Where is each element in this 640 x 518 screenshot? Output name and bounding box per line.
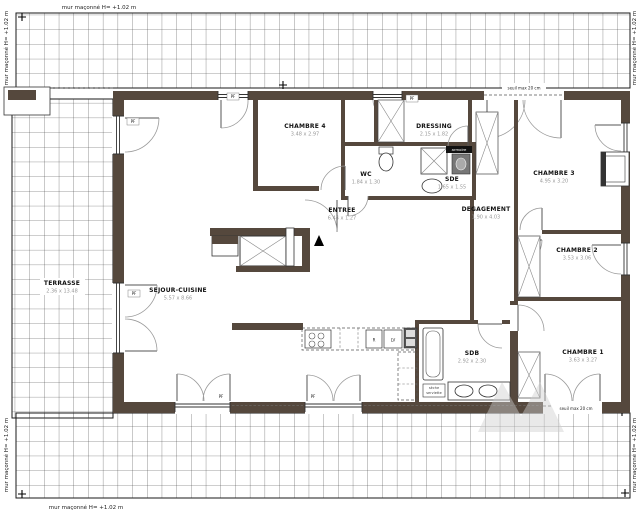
mur-label-left-top: mur maçonné H= +1.02 m — [3, 11, 10, 86]
dishwasher-label: LV — [391, 338, 396, 343]
pf-label: PF — [219, 394, 224, 399]
svg-text:2.92 x 2.30: 2.92 x 2.30 — [458, 359, 486, 365]
svg-text:3.48 x 2.97: 3.48 x 2.97 — [291, 132, 319, 138]
room-label-terrasse: TERRASSE 2.36 x 13.48 — [40, 278, 85, 295]
svg-text:3.53 x 3.06: 3.53 x 3.06 — [563, 256, 591, 262]
svg-text:CHAMBRE 3: CHAMBRE 3 — [533, 170, 574, 177]
floor-plan: mur maçonné H= +1.02 m mur maçonné H= +1… — [0, 0, 640, 513]
seche-serviette-label2: serviette — [426, 391, 442, 395]
pf-label: PF — [231, 94, 236, 99]
svg-text:1.90 x 4.03: 1.90 x 4.03 — [472, 215, 500, 221]
mur-label-right-bottom: mur maçonné H= +1.02 m — [631, 418, 638, 493]
svg-text:DEGAGEMENT: DEGAGEMENT — [462, 206, 512, 213]
svg-text:3.63 x 3.27: 3.63 x 3.27 — [569, 358, 597, 364]
svg-text:1.65 x 1.55: 1.65 x 1.55 — [438, 185, 466, 191]
mur-label-top: mur maçonné H= +1.02 m — [62, 4, 137, 11]
toilet-bowl — [379, 153, 393, 171]
svg-text:SEJOUR-CUISINE: SEJOUR-CUISINE — [149, 287, 207, 294]
svg-text:WC: WC — [360, 171, 372, 178]
svg-text:ENTREE: ENTREE — [328, 207, 355, 214]
mur-label-left-bottom: mur maçonné H= +1.02 m — [3, 418, 10, 493]
svg-text:6.44 x 1.27: 6.44 x 1.27 — [328, 216, 356, 222]
fridge-label: R — [373, 338, 376, 343]
svg-text:TERRASSE: TERRASSE — [44, 280, 80, 287]
seuil-label-bottom: seuil max 20 cm — [559, 406, 592, 411]
svg-text:CHAMBRE 4: CHAMBRE 4 — [284, 123, 325, 130]
planter-box — [4, 87, 50, 115]
svg-text:SDB: SDB — [465, 350, 480, 357]
svg-text:4.95 x 3.20: 4.95 x 3.20 — [540, 179, 568, 185]
svg-text:DRESSING: DRESSING — [416, 123, 452, 130]
svg-text:2.36 x 13.48: 2.36 x 13.48 — [46, 289, 78, 295]
seuil-label-top: seuil max 20 cm — [507, 86, 540, 91]
svg-text:CHAMBRE 1: CHAMBRE 1 — [562, 349, 603, 356]
pf-label: PF — [131, 119, 136, 124]
mur-label-bottom: mur maçonné H= +1.02 m — [49, 504, 124, 511]
armoire-label: armoire — [452, 147, 467, 152]
pf-label: PF — [132, 291, 137, 296]
pf-label: PF — [410, 96, 415, 101]
svg-text:CHAMBRE 2: CHAMBRE 2 — [556, 247, 597, 254]
terrace-left-grid — [12, 99, 113, 418]
svg-text:1.84 x 1.30: 1.84 x 1.30 — [352, 180, 380, 186]
svg-text:SDE: SDE — [445, 176, 459, 183]
svg-text:5.57 x 8.66: 5.57 x 8.66 — [164, 296, 192, 302]
terrace-top-grid — [16, 13, 630, 88]
mur-label-right-top: mur maçonné H= +1.02 m — [631, 11, 638, 86]
apartment-floor — [113, 91, 630, 413]
pf-label: PF — [311, 394, 316, 399]
seche-serviette-label: sèche — [429, 386, 439, 390]
svg-text:2.15 x 1.82: 2.15 x 1.82 — [420, 132, 448, 138]
